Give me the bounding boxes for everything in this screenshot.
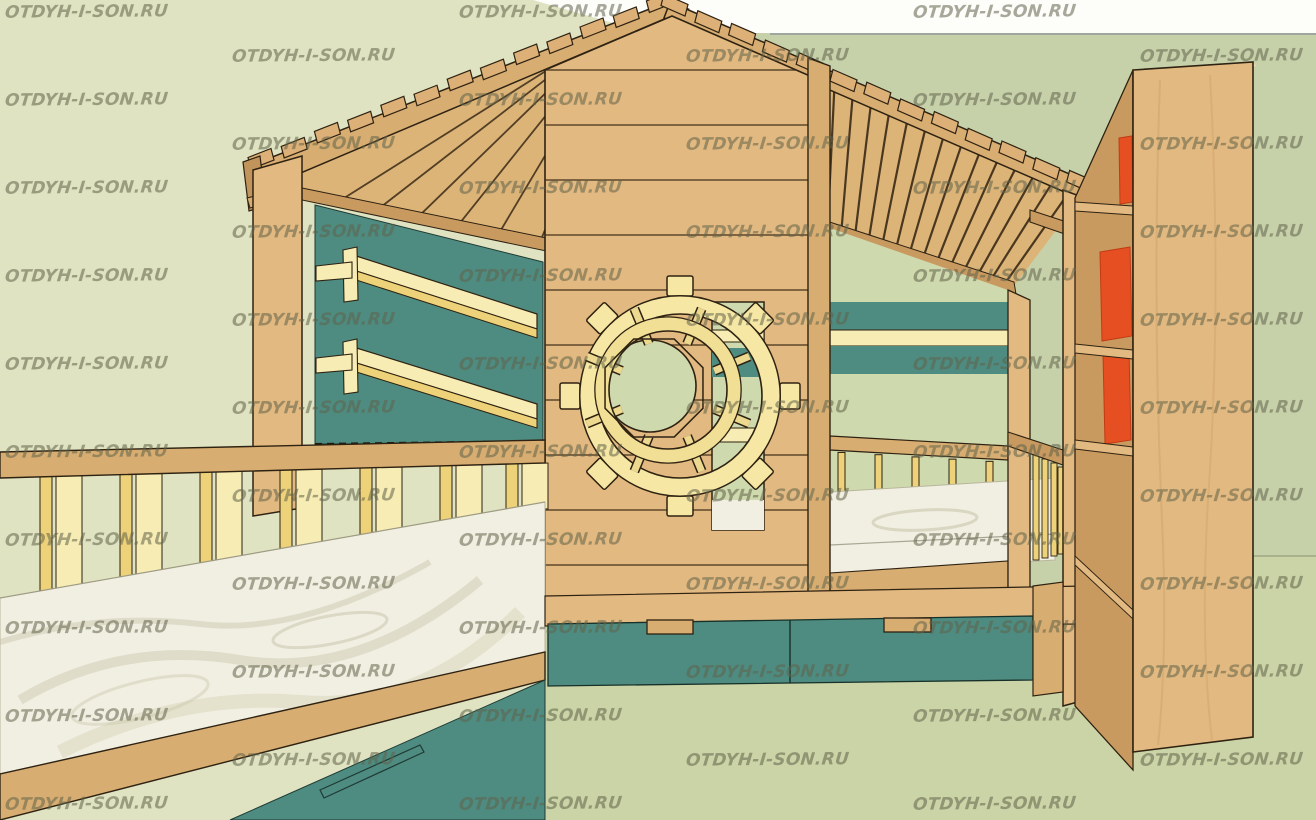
drawer-handle xyxy=(884,618,931,632)
railing-baluster xyxy=(120,474,132,577)
railing-baluster xyxy=(280,469,292,548)
railing-baluster xyxy=(456,465,482,521)
railing-baluster xyxy=(1033,455,1039,560)
interior-yellow-rail xyxy=(830,330,1008,346)
railing-baluster xyxy=(875,455,882,490)
red-book xyxy=(1119,136,1133,204)
wheel-handle-peg xyxy=(667,276,693,296)
railing-baluster xyxy=(360,467,372,535)
railing-baluster xyxy=(136,474,162,577)
wall-shelf-bracket xyxy=(316,262,352,281)
railing-baluster xyxy=(506,463,518,509)
panel-corner-post xyxy=(808,58,830,624)
wheel-handle-peg xyxy=(667,496,693,516)
bookcase xyxy=(1075,62,1256,770)
railing-baluster xyxy=(376,467,402,535)
under-bed-drawers xyxy=(545,582,1085,696)
railing-baluster xyxy=(838,452,845,491)
railing-baluster xyxy=(912,457,919,488)
railing-baluster xyxy=(216,472,242,563)
railing-baluster xyxy=(296,469,322,548)
interior-teal-band xyxy=(830,346,1008,374)
railing-baluster xyxy=(200,472,212,563)
inner-corner-post xyxy=(1008,290,1030,624)
watermarked-product-render: OTDYH-I-SON.RUOTDYH-I-SON.RUOTDYH-I-SON.… xyxy=(0,0,1316,820)
drawer-side-post xyxy=(1033,582,1063,696)
drawer-handle xyxy=(647,620,693,634)
red-book xyxy=(1103,350,1131,444)
railing-baluster xyxy=(56,476,82,591)
wall-shelf-bracket xyxy=(316,354,352,373)
wheel-handle-peg xyxy=(780,383,800,409)
front-gable-panel xyxy=(543,16,812,624)
railing-baluster xyxy=(40,476,52,591)
railing-baluster xyxy=(1042,459,1048,558)
railing-baluster xyxy=(949,459,956,486)
interior-teal-band xyxy=(830,302,1008,330)
window-mattress-glimpse xyxy=(712,500,764,530)
ship-wheel-porthole xyxy=(560,276,800,516)
railing-baluster xyxy=(1051,463,1057,556)
railing-baluster xyxy=(440,465,452,521)
red-book xyxy=(1100,247,1132,341)
railing-baluster xyxy=(986,461,993,484)
bed-3d-render xyxy=(0,0,1316,820)
wheel-handle-peg xyxy=(560,383,580,409)
bookcase-front-panel xyxy=(1133,62,1253,752)
